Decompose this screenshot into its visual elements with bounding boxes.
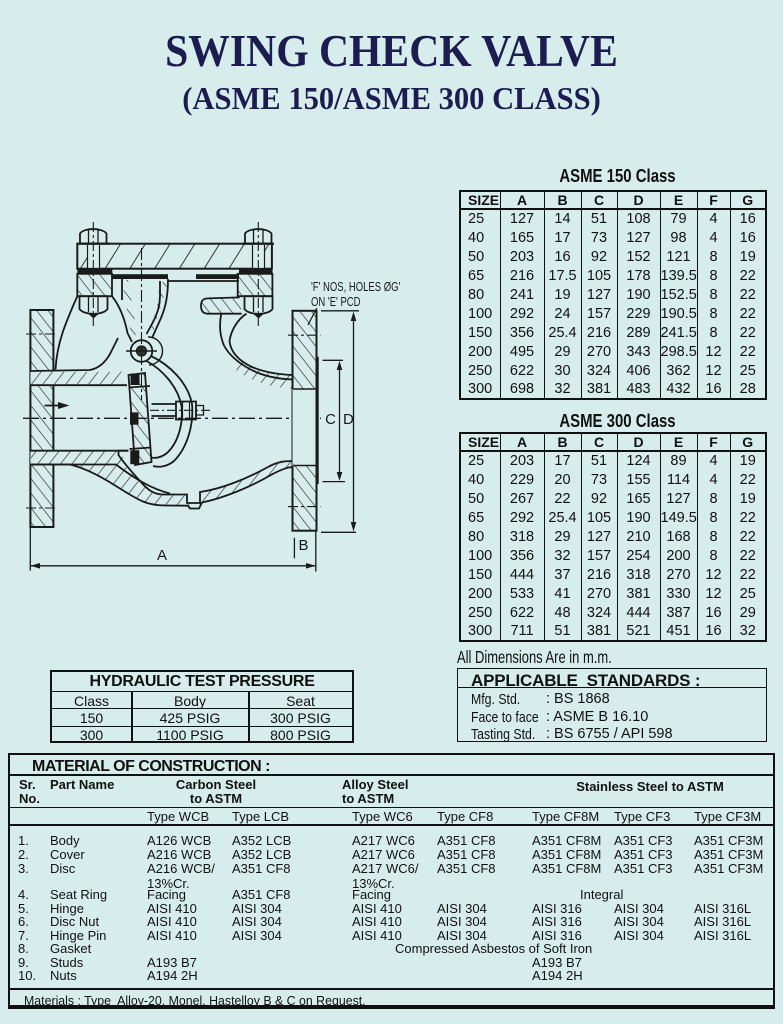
- svg-text:D: D: [343, 411, 354, 428]
- svg-text:'F' NOS, HOLES ØG': 'F' NOS, HOLES ØG': [311, 281, 400, 295]
- svg-text:ON 'E' PCD: ON 'E' PCD: [311, 296, 361, 310]
- svg-text:C: C: [325, 411, 336, 428]
- svg-text:A: A: [157, 547, 167, 564]
- svg-text:B: B: [299, 537, 309, 554]
